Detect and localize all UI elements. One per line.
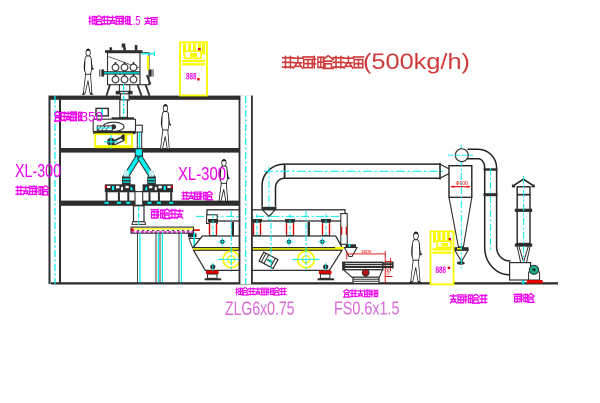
svg-text:888: 888 (436, 265, 447, 275)
svg-text:1500: 1500 (361, 249, 372, 254)
svg-text:FS0.6x1.5: FS0.6x1.5 (334, 298, 400, 319)
svg-text:350: 350 (81, 108, 104, 124)
svg-text:1.5: 1.5 (128, 14, 141, 28)
svg-text:ZLG6x0.75: ZLG6x0.75 (225, 299, 295, 320)
svg-text:888: 888 (186, 72, 197, 82)
svg-text:XL-300: XL-300 (15, 160, 61, 181)
svg-text:(500kg/h): (500kg/h) (363, 49, 470, 74)
svg-text:345: 345 (386, 267, 391, 275)
svg-text:XL-300: XL-300 (178, 163, 226, 184)
